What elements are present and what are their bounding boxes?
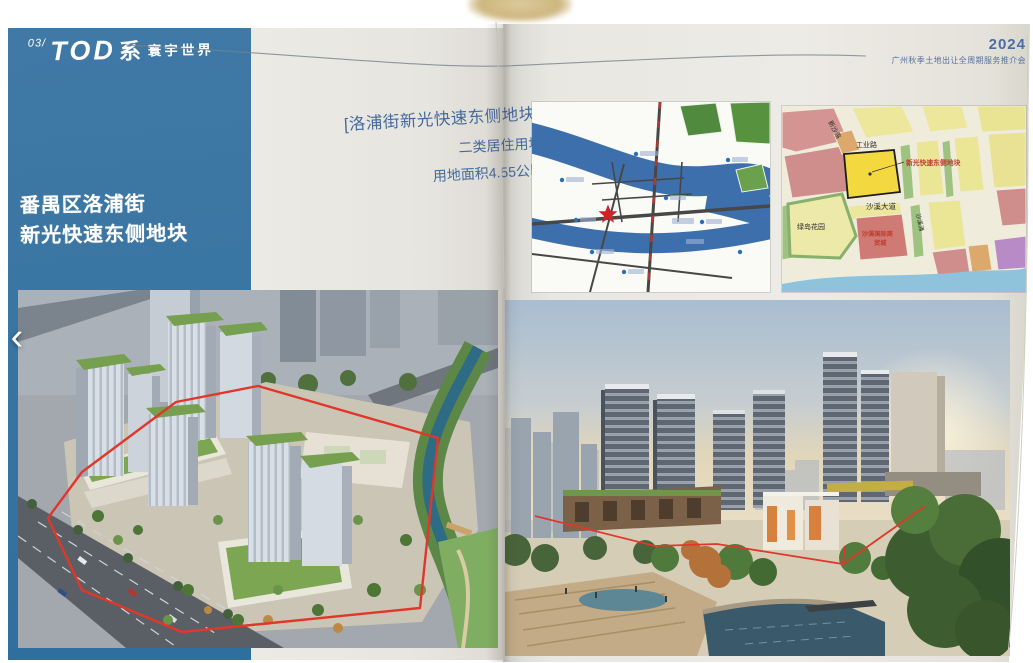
site-title-line1: 番禺区洛浦街 [20, 189, 188, 221]
wood-podium [563, 486, 721, 532]
series-latin: TOD [50, 35, 116, 66]
site-parcel-label: 新光快速东侧地块 [906, 158, 961, 167]
location-map: 44 [532, 102, 770, 292]
perspective-render-photo [505, 300, 1010, 656]
orange-lowrise-cluster [763, 492, 839, 550]
zoning-map: 工业路 新沙路 沙溪大道 绿岛花园 沙溪国际商 贸城 沙溪涌 新光快速东侧地块 [782, 106, 1026, 292]
market-label-line1: 沙溪国际商 [862, 230, 893, 238]
site-parcel [844, 150, 900, 198]
perspective-render-graphic [505, 300, 1010, 656]
previous-image-button[interactable]: ‹ [2, 316, 32, 358]
chapter-index: 03/ [28, 37, 47, 49]
park-label: 绿岛花园 [797, 222, 825, 231]
market-label-line2: 贸城 [874, 239, 887, 247]
event-subtitle: 广州秋季土地出让全周期服务推介会 [780, 55, 1026, 66]
aerial-render-photo [18, 290, 498, 648]
left-page-footer-band [8, 648, 251, 660]
brochure-spread: 03/TOD系寰宇世界 番禺区洛浦街 新光快速东侧地块 [洛浦街新光快速东侧地块… [0, 0, 1033, 663]
photo-viewer: 03/TOD系寰宇世界 番禺区洛浦街 新光快速东侧地块 [洛浦街新光快速东侧地块… [0, 0, 1033, 663]
plot-info: [洛浦街新光快速东侧地块] 二类居住用地 用地面积4.55公顷 [272, 100, 544, 195]
road-label-industrial: 工业路 [856, 140, 877, 149]
road-label-shaxi-avenue: 沙溪大道 [866, 201, 896, 211]
site-title: 番禺区洛浦街 新光快速东侧地块 [20, 189, 189, 251]
series-cn: 系 [119, 39, 141, 64]
site-title-line2: 新光快速东侧地块 [20, 219, 188, 251]
site-centroid-dot [868, 172, 871, 175]
event-year: 2024 [780, 36, 1026, 53]
series-header: 03/TOD系寰宇世界 [28, 32, 214, 67]
chevron-left-icon: ‹ [11, 316, 24, 358]
aerial-render-graphic [18, 290, 498, 648]
location-map-graphic: 44 [532, 102, 770, 292]
event-header: 2024 广州秋季土地出让全周期服务推介会 [780, 36, 1026, 66]
zoning-map-graphic: 工业路 新沙路 沙溪大道 绿岛花园 沙溪国际商 贸城 沙溪涌 新光快速东侧地块 [782, 106, 1026, 292]
series-name: 寰宇世界 [148, 42, 214, 58]
